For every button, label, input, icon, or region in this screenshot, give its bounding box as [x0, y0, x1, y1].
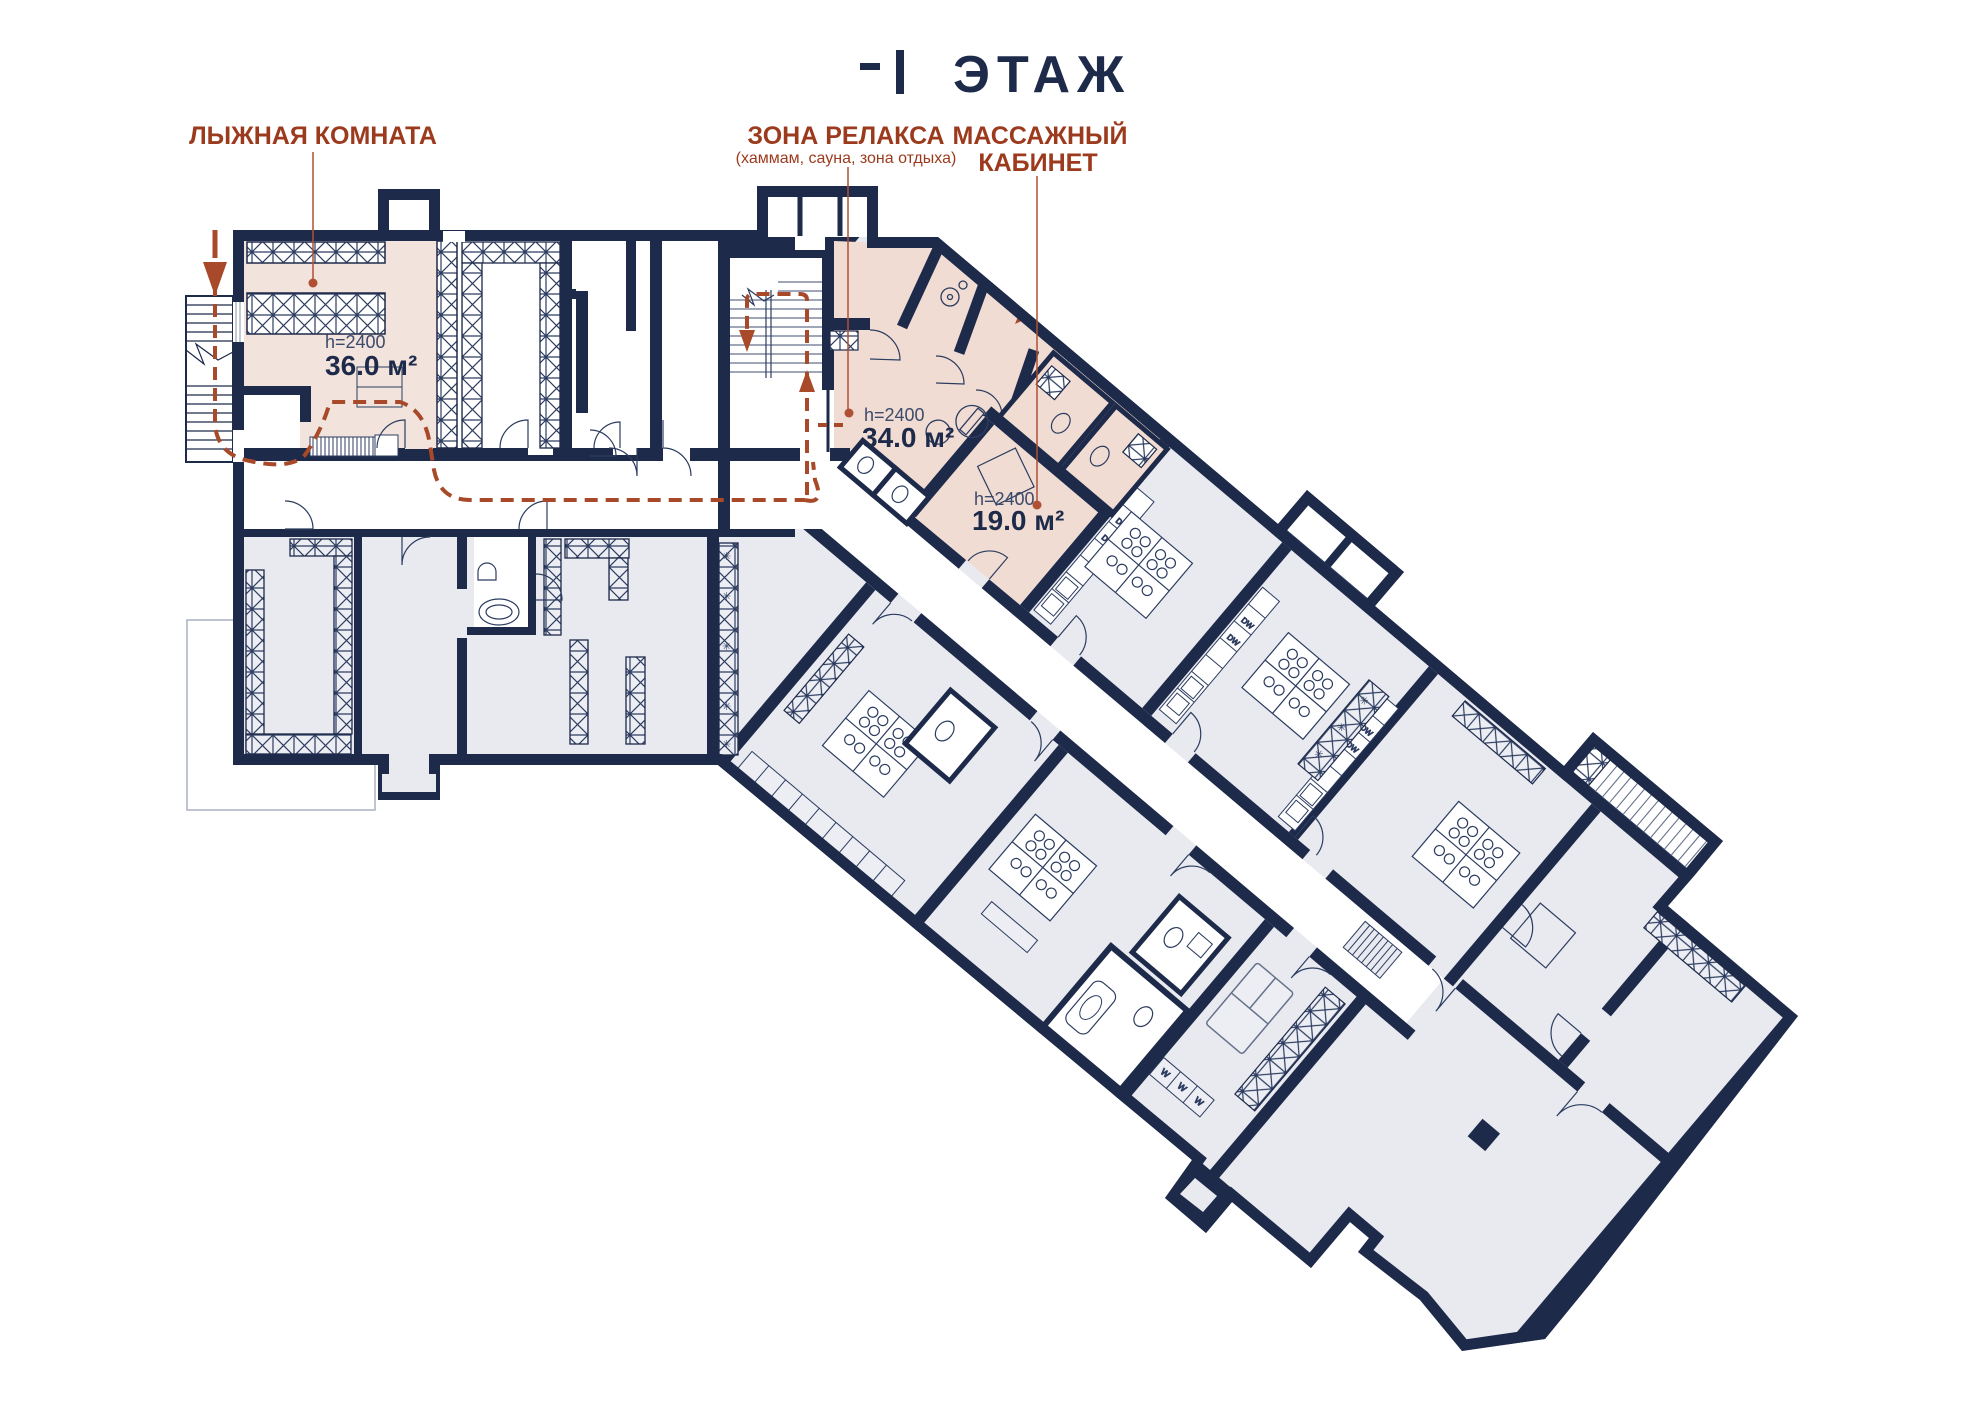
- svg-text:(хаммам, сауна, зона отдыха): (хаммам, сауна, зона отдыха): [736, 150, 957, 167]
- svg-text:36.0 м²: 36.0 м²: [325, 350, 417, 381]
- svg-text:✳: ✳: [722, 701, 731, 713]
- svg-text:34.0 м²: 34.0 м²: [862, 422, 954, 453]
- svg-text:19.0 м²: 19.0 м²: [972, 505, 1064, 536]
- svg-text:ЛЫЖНАЯ КОМНАТА: ЛЫЖНАЯ КОМНАТА: [189, 122, 437, 150]
- svg-text:✳: ✳: [722, 641, 731, 653]
- svg-text:✳: ✳: [722, 739, 731, 751]
- svg-text:h=2400: h=2400: [325, 332, 386, 352]
- svg-text:МАССАЖНЫЙ: МАССАЖНЫЙ: [953, 120, 1128, 150]
- svg-text:✳: ✳: [722, 551, 731, 563]
- svg-text:✳: ✳: [722, 591, 731, 603]
- svg-text:КАБИНЕТ: КАБИНЕТ: [978, 149, 1097, 177]
- svg-text:ЭТАЖ: ЭТАЖ: [953, 46, 1131, 104]
- svg-text:ЗОНА РЕЛАКСА: ЗОНА РЕЛАКСА: [747, 122, 944, 150]
